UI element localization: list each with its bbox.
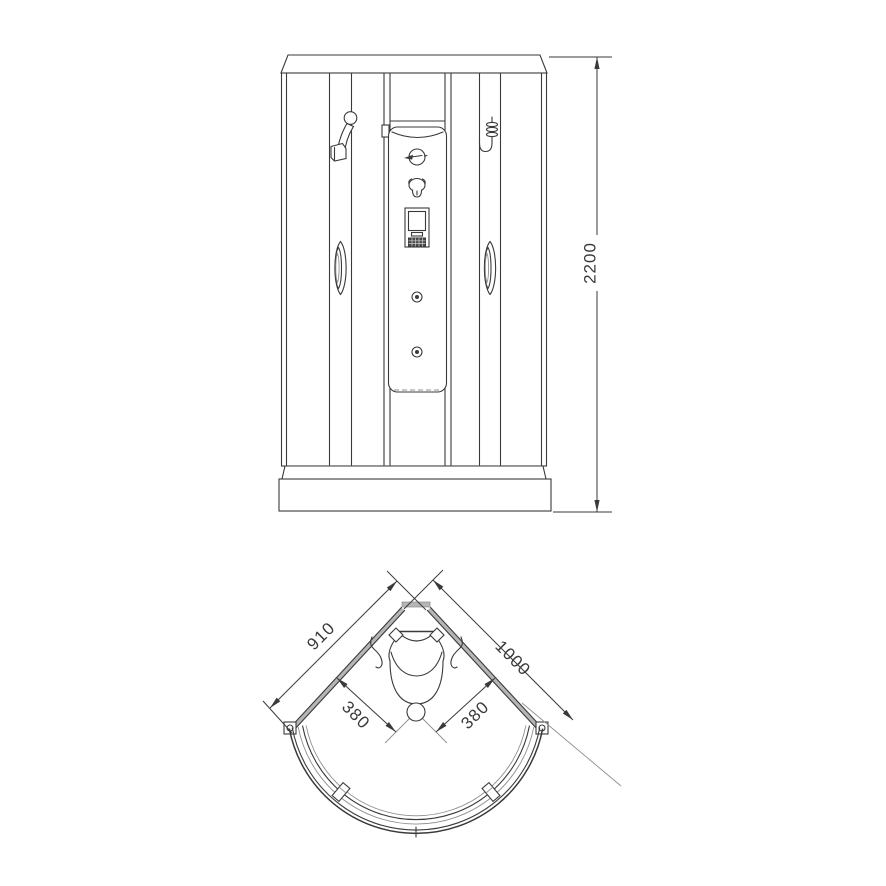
technical-drawing-page: 2200 [0,0,886,886]
height-label: 2200 [581,242,600,284]
door-handle-right [484,242,495,295]
dimension-380-right: 380 [436,678,495,733]
roof-panel [281,55,547,73]
panel-bracket [382,125,389,137]
center-right-label: 380 [457,697,493,733]
plan-view: 910 1000 380 380 [263,570,621,837]
sliding-doors-arc [289,725,542,837]
drain [385,703,447,743]
left-wall-label: 910 [303,618,339,654]
body-jet-lower [412,347,422,357]
door-pull-right [482,783,500,802]
control-column [382,121,447,392]
shower-tray-base [279,466,551,511]
door-handle-left [335,242,346,295]
front-elevation-view: 2200 [279,55,612,512]
right-wall-label: 1000 [491,637,534,680]
body-jet-upper [412,292,422,302]
dimension-380-left: 380 [337,678,396,733]
control-unit [405,208,429,247]
shower-cabin-drawing: 2200 [0,0,886,886]
center-left-label: 380 [338,697,374,733]
dimension-2200: 2200 [549,57,612,512]
corner-seat [371,628,463,704]
door-pull-left [332,783,350,802]
